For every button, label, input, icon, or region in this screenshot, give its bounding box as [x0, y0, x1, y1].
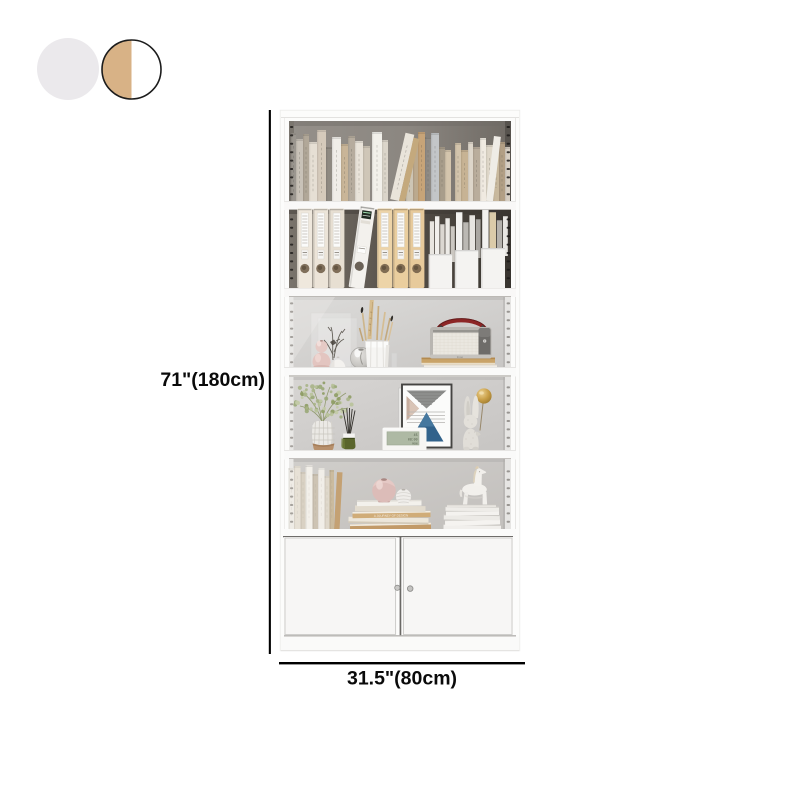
svg-text:31.5"(80cm): 31.5"(80cm) [347, 668, 457, 690]
svg-text:45: 45 [414, 433, 418, 437]
svg-text:A JOURNEY OF DESIGN: A JOURNEY OF DESIGN [374, 513, 408, 517]
svg-text:tivoo: tivoo [457, 355, 464, 359]
svg-text:08:00: 08:00 [408, 437, 418, 441]
svg-text:71"(180cm): 71"(180cm) [160, 369, 265, 391]
svg-text:MON: MON [412, 443, 417, 446]
